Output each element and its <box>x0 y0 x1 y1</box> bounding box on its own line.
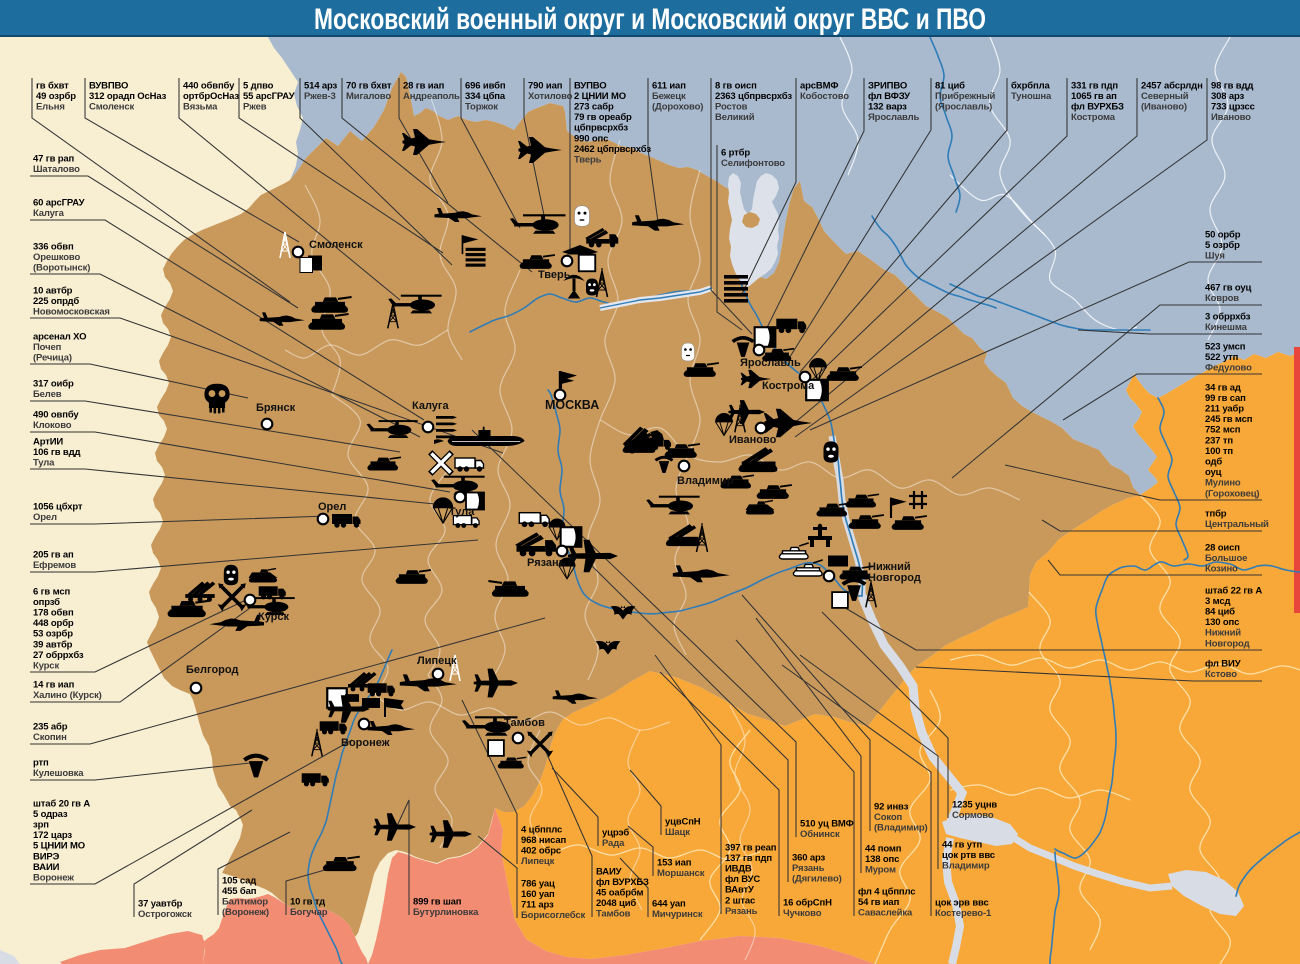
svg-text:490 овпбу: 490 овпбу <box>33 409 79 420</box>
svg-text:37 уавтбр: 37 уавтбр <box>138 898 183 909</box>
svg-text:Мигалово: Мигалово <box>346 91 391 102</box>
svg-text:312 орадп ОсНаз: 312 орадп ОсНаз <box>89 91 167 102</box>
svg-text:334 цбпа: 334 цбпа <box>465 91 506 102</box>
svg-text:790 иап: 790 иап <box>528 80 563 91</box>
svg-text:273 сабр: 273 сабр <box>574 102 614 113</box>
svg-text:Центральный: Центральный <box>1205 519 1269 530</box>
svg-text:Липецк: Липецк <box>521 856 555 867</box>
svg-text:245 гв мсп: 245 гв мсп <box>1205 414 1253 425</box>
svg-text:Новомосковская: Новомосковская <box>33 307 110 318</box>
svg-text:317 оибр: 317 оибр <box>33 378 74 389</box>
svg-text:Селифонтово: Селифонтово <box>721 158 785 169</box>
svg-text:3 обррхбз: 3 обррхбз <box>1205 311 1251 322</box>
svg-text:397 гв реап: 397 гв реап <box>725 842 777 853</box>
svg-text:Калуга: Калуга <box>33 208 65 219</box>
svg-text:60 арсГРАУ: 60 арсГРАУ <box>33 197 85 208</box>
svg-text:440 обвпбу: 440 обвпбу <box>183 80 235 91</box>
svg-text:Орешково: Орешково <box>33 252 80 263</box>
svg-text:Сокоп: Сокоп <box>874 812 902 823</box>
svg-text:Торжок: Торжок <box>465 102 498 113</box>
svg-text:105 сад: 105 сад <box>222 875 256 886</box>
svg-text:фл ВУРХБЗ: фл ВУРХБЗ <box>1071 102 1124 113</box>
svg-text:Московский военный округ и Мос: Московский военный округ и Московский ок… <box>314 3 986 36</box>
svg-text:5 одраз: 5 одраз <box>33 809 68 820</box>
svg-text:Ржев-3: Ржев-3 <box>304 91 336 102</box>
svg-text:Почеп: Почеп <box>33 342 62 353</box>
svg-text:448 орбр: 448 орбр <box>33 618 74 629</box>
svg-text:ЗРИПВО: ЗРИПВО <box>868 80 907 91</box>
svg-text:арсВМФ: арсВМФ <box>800 80 838 91</box>
svg-text:92 инвз: 92 инвз <box>874 801 909 812</box>
svg-text:Курск: Курск <box>258 611 290 623</box>
svg-text:336 обвп: 336 обвп <box>33 241 74 252</box>
svg-text:арсенал ХО: арсенал ХО <box>33 331 86 342</box>
svg-text:178 обвп: 178 обвп <box>33 608 74 619</box>
svg-text:49 озрбр: 49 озрбр <box>36 91 76 102</box>
svg-text:фл ВУРХБЗ: фл ВУРХБЗ <box>596 877 649 888</box>
svg-text:бхрбпла: бхрбпла <box>1011 80 1050 91</box>
svg-text:Андреаполь: Андреаполь <box>403 91 460 102</box>
svg-text:Костерево-1: Костерево-1 <box>935 908 992 919</box>
svg-text:2462 цбпрвсрхбз: 2462 цбпрвсрхбз <box>574 144 651 155</box>
svg-text:Кулешовка: Кулешовка <box>33 768 84 779</box>
svg-text:81 циб: 81 циб <box>935 80 965 91</box>
svg-text:172 царз: 172 царз <box>33 830 72 841</box>
svg-text:98 гв вдд: 98 гв вдд <box>1211 80 1253 91</box>
svg-text:522 утп: 522 утп <box>1205 352 1239 363</box>
svg-text:50 орбр: 50 орбр <box>1205 229 1241 240</box>
svg-text:Хотилово: Хотилово <box>528 91 573 102</box>
svg-text:44 помп: 44 помп <box>865 843 902 854</box>
svg-text:ВУПВО: ВУПВО <box>574 80 607 91</box>
svg-text:Рязань: Рязань <box>792 863 825 874</box>
svg-text:ВУВПВО: ВУВПВО <box>89 80 128 91</box>
svg-text:1065 гв ап: 1065 гв ап <box>1071 91 1117 102</box>
svg-text:ортбрОсНаз: ортбрОсНаз <box>183 91 239 102</box>
svg-text:2457 абсрлдн: 2457 абсрлдн <box>1141 80 1203 91</box>
svg-text:ВИРЭ: ВИРЭ <box>33 851 60 862</box>
svg-text:990 опс: 990 опс <box>574 133 608 144</box>
svg-text:Владимир: Владимир <box>677 475 734 487</box>
svg-text:5 дпво: 5 дпво <box>243 80 274 91</box>
svg-text:Шуя: Шуя <box>1205 251 1225 262</box>
svg-text:4 цбпплс: 4 цбпплс <box>521 824 562 835</box>
svg-text:ртп: ртп <box>33 757 49 768</box>
svg-text:968 нисап: 968 нисап <box>521 835 567 846</box>
svg-text:Прибрежный: Прибрежный <box>935 91 996 102</box>
svg-text:штаб 22 гв А: штаб 22 гв А <box>1205 585 1262 596</box>
svg-text:(Гороховец): (Гороховец) <box>1205 488 1259 499</box>
svg-text:(Речица): (Речица) <box>33 353 72 364</box>
svg-text:Тверь: Тверь <box>538 269 571 281</box>
svg-text:Ковров: Ковров <box>1205 293 1239 304</box>
svg-text:фл ВИУ: фл ВИУ <box>1205 658 1241 669</box>
svg-text:Смоленск: Смоленск <box>309 239 363 251</box>
svg-text:211 уабр: 211 уабр <box>1205 404 1244 415</box>
svg-text:ВАвтУ: ВАвтУ <box>725 885 754 896</box>
svg-text:611 иап: 611 иап <box>652 80 686 91</box>
svg-text:Мичуринск: Мичуринск <box>652 909 703 920</box>
svg-text:Ельня: Ельня <box>36 102 65 113</box>
svg-text:467 гв оуц: 467 гв оуц <box>1205 282 1252 293</box>
svg-text:ВАИУ: ВАИУ <box>596 866 622 877</box>
svg-text:зрп: зрп <box>33 820 49 831</box>
svg-text:АртИИ: АртИИ <box>33 436 63 447</box>
svg-text:14 гв иап: 14 гв иап <box>33 679 75 690</box>
svg-text:Скопин: Скопин <box>33 732 67 743</box>
svg-text:2363 цбпрвсрхбз: 2363 цбпрвсрхбз <box>715 91 792 102</box>
svg-text:786 уац: 786 уац <box>521 878 555 889</box>
svg-text:МОСКВА: МОСКВА <box>545 398 599 412</box>
svg-text:Тамбов: Тамбов <box>596 909 631 920</box>
svg-text:Обнинск: Обнинск <box>800 829 840 840</box>
svg-text:8 гв оисп: 8 гв оисп <box>715 80 757 91</box>
svg-text:Кстово: Кстово <box>1205 669 1237 680</box>
svg-text:Кинешма: Кинешма <box>1205 322 1248 333</box>
svg-text:Курск: Курск <box>33 661 59 672</box>
svg-text:Кобостово: Кобостово <box>800 91 849 102</box>
svg-text:(Дорохово): (Дорохово) <box>652 102 703 113</box>
svg-text:Ярославль: Ярославль <box>868 112 919 123</box>
svg-text:Липецк: Липецк <box>417 655 457 667</box>
svg-text:27 обррхбз: 27 обррхбз <box>33 650 84 661</box>
svg-text:Мулино: Мулино <box>1205 478 1241 489</box>
svg-text:фл ВУС: фл ВУС <box>725 874 760 885</box>
svg-text:Великий: Великий <box>715 112 755 123</box>
svg-text:Тула: Тула <box>33 458 55 469</box>
svg-text:Рязань: Рязань <box>527 557 566 569</box>
svg-text:510 уц ВМФ: 510 уц ВМФ <box>800 818 854 829</box>
svg-text:Ярославль: Ярославль <box>740 357 801 369</box>
svg-text:205 гв ап: 205 гв ап <box>33 549 74 560</box>
svg-text:137 гв пдп: 137 гв пдп <box>725 853 772 864</box>
svg-text:штаб 20 гв А: штаб 20 гв А <box>33 798 90 809</box>
svg-text:160 уап: 160 уап <box>521 889 555 900</box>
svg-text:225 опрдб: 225 опрдб <box>33 296 79 307</box>
svg-text:10 автбр: 10 автбр <box>33 285 73 296</box>
svg-text:Иваново: Иваново <box>1211 112 1251 123</box>
svg-text:45 оабрбм: 45 оабрбм <box>596 888 644 899</box>
svg-text:Балтимор: Балтимор <box>222 897 268 908</box>
svg-text:(Ярославль): (Ярославль) <box>935 102 992 113</box>
svg-text:Орел: Орел <box>33 512 57 523</box>
svg-text:Владимир: Владимир <box>942 861 990 872</box>
svg-text:237 тп: 237 тп <box>1205 435 1233 446</box>
svg-text:Тверь: Тверь <box>574 155 602 166</box>
svg-text:138 опс: 138 опс <box>865 854 899 865</box>
svg-text:фл ВФЗУ: фл ВФЗУ <box>868 91 910 102</box>
svg-text:6 гв мсп: 6 гв мсп <box>33 586 70 597</box>
svg-text:1235 уцнв: 1235 уцнв <box>952 799 997 810</box>
svg-text:Смоленск: Смоленск <box>89 102 134 113</box>
svg-text:331 гв пдп: 331 гв пдп <box>1071 80 1118 91</box>
svg-text:Шацк: Шацк <box>665 827 690 838</box>
svg-text:Федулово: Федулово <box>1205 363 1252 374</box>
svg-text:Новгород: Новгород <box>868 572 921 584</box>
svg-text:5 ЦНИИ МО: 5 ЦНИИ МО <box>33 841 85 852</box>
svg-text:Халино (Курск): Халино (Курск) <box>33 690 102 701</box>
svg-text:Иваново: Иваново <box>729 434 777 446</box>
svg-text:Муром: Муром <box>865 865 896 876</box>
svg-text:Вязьма: Вязьма <box>183 102 218 113</box>
svg-text:цбпрвсрхбз: цбпрвсрхбз <box>574 123 628 134</box>
svg-text:Кострома: Кострома <box>1071 112 1116 123</box>
svg-text:(Воротынск): (Воротынск) <box>33 263 90 274</box>
svg-text:644 уап: 644 уап <box>652 898 686 909</box>
svg-text:Саваслейка: Саваслейка <box>858 908 913 919</box>
svg-text:1056 цбхрт: 1056 цбхрт <box>33 501 83 512</box>
svg-text:Богучар: Богучар <box>290 907 328 918</box>
svg-text:733 црзсс: 733 црзсс <box>1211 102 1255 113</box>
svg-text:47 гв рап: 47 гв рап <box>33 153 75 164</box>
svg-text:53 озрбр: 53 озрбр <box>33 629 73 640</box>
svg-text:гв бхвт: гв бхвт <box>36 80 69 91</box>
svg-text:100 тп: 100 тп <box>1205 446 1233 457</box>
svg-text:2 ЦНИИ МО: 2 ЦНИИ МО <box>574 91 626 102</box>
svg-text:34 гв ад: 34 гв ад <box>1205 382 1241 393</box>
svg-text:6 ртбр: 6 ртбр <box>721 147 750 158</box>
svg-text:тпбр: тпбр <box>1205 508 1227 519</box>
svg-text:Нижний: Нижний <box>1205 628 1241 639</box>
svg-text:Воронеж: Воронеж <box>33 873 74 884</box>
svg-text:уцвСпН: уцвСпН <box>665 816 701 827</box>
svg-text:уцрэб: уцрэб <box>602 827 629 838</box>
svg-text:Моршанск: Моршанск <box>657 868 705 879</box>
svg-text:39 автбр: 39 автбр <box>33 639 73 650</box>
svg-text:Орел: Орел <box>318 501 346 513</box>
svg-text:Чучково: Чучково <box>783 908 822 919</box>
svg-text:Воронеж: Воронеж <box>341 737 390 749</box>
svg-text:130 опс: 130 опс <box>1205 617 1239 628</box>
svg-text:402 обрс: 402 обрс <box>521 846 561 857</box>
svg-text:Белгород: Белгород <box>186 664 238 676</box>
svg-text:оуц: оуц <box>1205 467 1222 478</box>
svg-text:Бутурлиновка: Бутурлиновка <box>413 907 479 918</box>
svg-text:235 абр: 235 абр <box>33 721 68 732</box>
svg-text:цок ртв ввс: цок ртв ввс <box>942 850 995 861</box>
svg-text:308 арз: 308 арз <box>1211 91 1245 102</box>
svg-text:54 гв иап: 54 гв иап <box>858 897 900 908</box>
svg-text:2048 циб: 2048 циб <box>596 898 636 909</box>
svg-text:Ефремов: Ефремов <box>33 560 76 571</box>
svg-text:Шаталово: Шаталово <box>33 164 80 175</box>
svg-text:цок эрв ввс: цок эрв ввс <box>935 897 989 908</box>
svg-text:16 обрСпН: 16 обрСпН <box>783 897 832 908</box>
svg-text:28 оисп: 28 оисп <box>1205 542 1240 553</box>
svg-text:44 гв утп: 44 гв утп <box>942 839 982 850</box>
svg-text:ВАИИ: ВАИИ <box>33 862 60 873</box>
svg-text:Тула: Тула <box>449 506 475 518</box>
svg-text:153 иап: 153 иап <box>657 857 692 868</box>
svg-text:(Дягилево): (Дягилево) <box>792 874 842 885</box>
svg-text:Рязань: Рязань <box>725 906 758 917</box>
svg-text:Клоково: Клоково <box>33 420 72 431</box>
svg-text:Туношна: Туношна <box>1011 91 1052 102</box>
svg-text:Козино: Козино <box>1205 564 1238 575</box>
svg-text:10 гв тд: 10 гв тд <box>290 896 325 907</box>
svg-text:ИВДВ: ИВДВ <box>725 864 752 875</box>
svg-text:опрзб: опрзб <box>33 597 60 608</box>
svg-text:Белев: Белев <box>33 389 62 400</box>
svg-text:Калуга: Калуга <box>412 400 450 412</box>
svg-text:одб: одб <box>1205 457 1222 468</box>
svg-text:Тамбов: Тамбов <box>504 717 545 729</box>
svg-text:Ростов: Ростов <box>715 102 748 113</box>
svg-text:899 гв шап: 899 гв шап <box>413 896 462 907</box>
svg-text:3 мсд: 3 мсд <box>1205 596 1231 607</box>
svg-text:2 штас: 2 штас <box>725 895 755 906</box>
svg-text:28 гв иап: 28 гв иап <box>403 80 445 91</box>
svg-text:132 варз: 132 варз <box>868 102 907 113</box>
svg-text:99 гв сап: 99 гв сап <box>1205 393 1246 404</box>
svg-text:Рада: Рада <box>602 838 625 849</box>
svg-text:752 мсп: 752 мсп <box>1205 425 1241 436</box>
svg-text:Борисоглебск: Борисоглебск <box>521 910 586 921</box>
svg-text:(Воронеж): (Воронеж) <box>222 907 269 918</box>
svg-text:(Иваново): (Иваново) <box>1141 102 1187 113</box>
svg-text:696 ивбп: 696 ивбп <box>465 80 506 91</box>
svg-text:360 арз: 360 арз <box>792 852 826 863</box>
svg-text:106 гв вдд: 106 гв вдд <box>33 447 80 458</box>
svg-text:Острогожск: Острогожск <box>138 909 192 920</box>
svg-text:фл 4 цбпплс: фл 4 цбпплс <box>858 886 915 897</box>
svg-text:Ржев: Ржев <box>243 102 267 113</box>
svg-text:(Владимир): (Владимир) <box>874 823 928 834</box>
svg-text:70 гв бхвт: 70 гв бхвт <box>346 80 392 91</box>
svg-text:55 арсГРАУ: 55 арсГРАУ <box>243 91 295 102</box>
svg-text:Большое: Большое <box>1205 553 1247 564</box>
svg-text:Сормово: Сормово <box>952 810 994 821</box>
svg-text:523 умсп: 523 умсп <box>1205 341 1246 352</box>
svg-text:455 бап: 455 бап <box>222 886 257 897</box>
svg-text:Кострома: Кострома <box>762 380 815 392</box>
svg-text:5 озрбр: 5 озрбр <box>1205 240 1240 251</box>
svg-text:711 арз: 711 арз <box>521 900 554 911</box>
svg-text:Новгород: Новгород <box>1205 638 1250 649</box>
svg-text:514 арз: 514 арз <box>304 80 338 91</box>
svg-text:84 циб: 84 циб <box>1205 607 1235 618</box>
svg-text:Северный: Северный <box>1141 91 1189 102</box>
svg-text:Бежецк: Бежецк <box>652 91 686 102</box>
svg-text:Брянск: Брянск <box>256 402 296 414</box>
svg-text:79 гв ореабр: 79 гв ореабр <box>574 112 632 123</box>
